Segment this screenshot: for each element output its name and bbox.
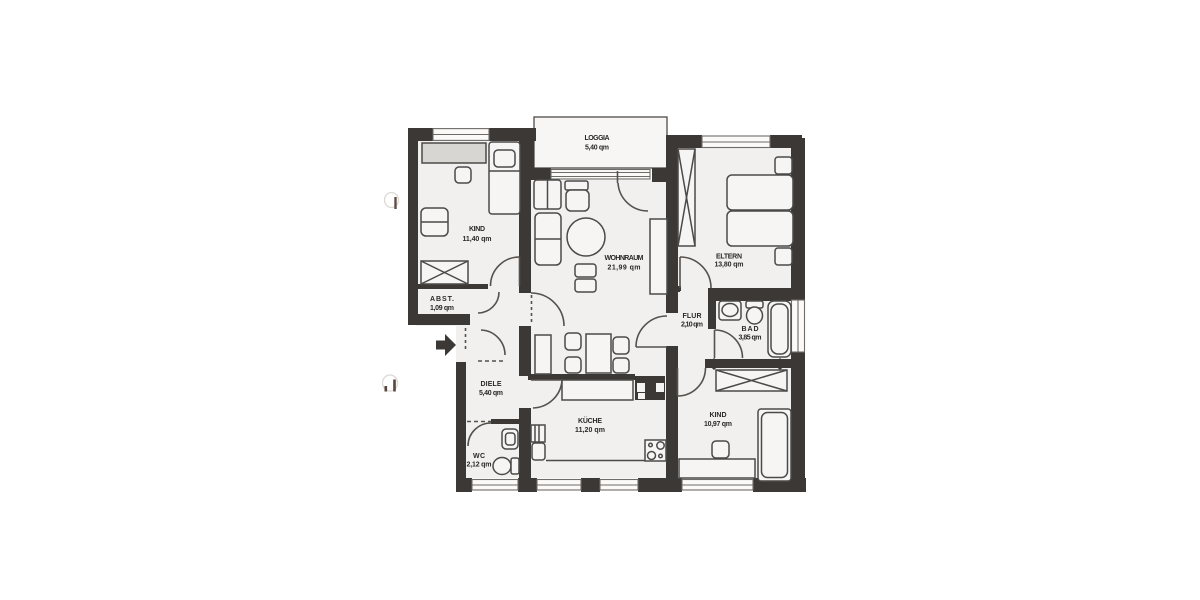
- svg-text:BAD: BAD: [742, 326, 759, 333]
- svg-text:3,85 qm: 3,85 qm: [739, 335, 762, 342]
- svg-text:10,97 qm: 10,97 qm: [704, 421, 732, 428]
- svg-text:21,99 qm: 21,99 qm: [608, 265, 641, 272]
- svg-text:DIELE: DIELE: [481, 381, 502, 388]
- svg-text:KIND: KIND: [710, 412, 727, 419]
- svg-text:KÜCHE: KÜCHE: [578, 416, 602, 425]
- svg-text:5,40 qm: 5,40 qm: [479, 390, 503, 397]
- svg-text:LOGGIA: LOGGIA: [585, 135, 610, 142]
- svg-text:11,20 qm: 11,20 qm: [575, 427, 605, 434]
- svg-text:2,10 qm: 2,10 qm: [681, 322, 703, 329]
- svg-text:11,40 qm: 11,40 qm: [463, 236, 492, 243]
- svg-text:5,40 qm: 5,40 qm: [585, 145, 609, 152]
- svg-text:13,80 qm: 13,80 qm: [715, 262, 744, 269]
- svg-text:WOHNRAUM: WOHNRAUM: [605, 255, 644, 262]
- svg-text:ELTERN: ELTERN: [716, 254, 742, 261]
- svg-text:WC: WC: [473, 453, 485, 460]
- svg-text:1,09 qm: 1,09 qm: [430, 305, 454, 312]
- svg-text:FLUR: FLUR: [683, 313, 702, 320]
- svg-text:KIND: KIND: [469, 226, 485, 233]
- svg-text:ABST.: ABST.: [430, 296, 454, 303]
- svg-text:2,12 qm: 2,12 qm: [467, 462, 492, 469]
